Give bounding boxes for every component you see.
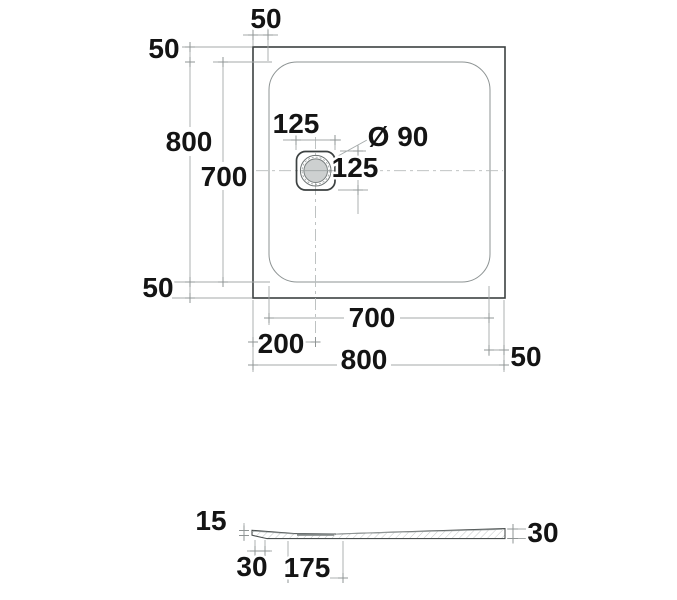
dim-corner-offset-bottom: 50 (142, 272, 173, 303)
section-view: 15 30 30 175 (195, 505, 558, 583)
dim-drain-plate-height: 125 (332, 152, 379, 183)
dim-drain-plate-width: 125 (273, 108, 320, 139)
dim-corner-offset-right: 50 (510, 341, 541, 372)
technical-drawing-shower-tray: 50 50 800 700 50 125 Ø 90 125 700 200 80… (0, 0, 677, 600)
plan-view: 50 50 800 700 50 125 Ø 90 125 700 200 80… (142, 3, 541, 375)
dim-drain-center-from-left: 200 (258, 328, 305, 359)
dim-corner-offset-top: 50 (250, 3, 281, 34)
dim-corner-offset-left: 50 (148, 33, 179, 64)
dim-overall-width: 800 (341, 344, 388, 375)
dim-overall-thickness: 30 (527, 517, 558, 548)
dim-foot-width: 30 (236, 551, 267, 582)
dim-drain-diameter: Ø 90 (368, 121, 429, 152)
dim-drain-offset: 175 (284, 552, 331, 583)
dim-edge-thickness: 15 (195, 505, 226, 536)
plan-dimension-ticks (185, 30, 509, 370)
plan-dimension-lines (172, 27, 508, 372)
dim-overall-height: 800 (166, 126, 213, 157)
dim-inner-width: 700 (349, 302, 396, 333)
drawing-canvas: 50 50 800 700 50 125 Ø 90 125 700 200 80… (0, 0, 677, 600)
dim-inner-height: 700 (201, 161, 248, 192)
drain-section (297, 534, 334, 536)
tray-outer-edge (253, 47, 505, 298)
drain-assembly (297, 152, 336, 191)
